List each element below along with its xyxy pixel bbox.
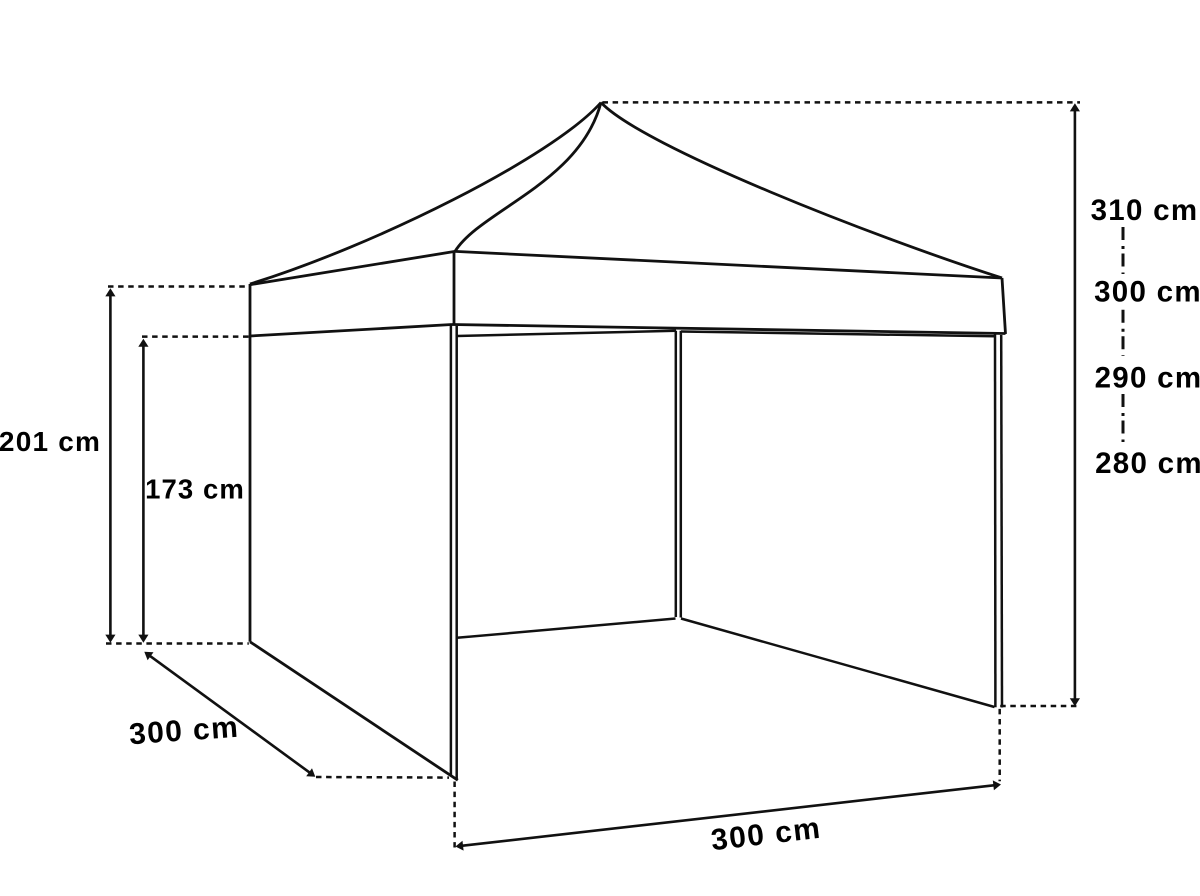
svg-text:290 cm: 290 cm: [1095, 362, 1200, 395]
svg-text:201 cm: 201 cm: [0, 426, 101, 457]
svg-text:300 cm: 300 cm: [1094, 276, 1200, 309]
svg-text:280 cm: 280 cm: [1095, 447, 1200, 480]
svg-text:310 cm: 310 cm: [1091, 194, 1199, 227]
svg-text:173 cm: 173 cm: [145, 474, 245, 505]
